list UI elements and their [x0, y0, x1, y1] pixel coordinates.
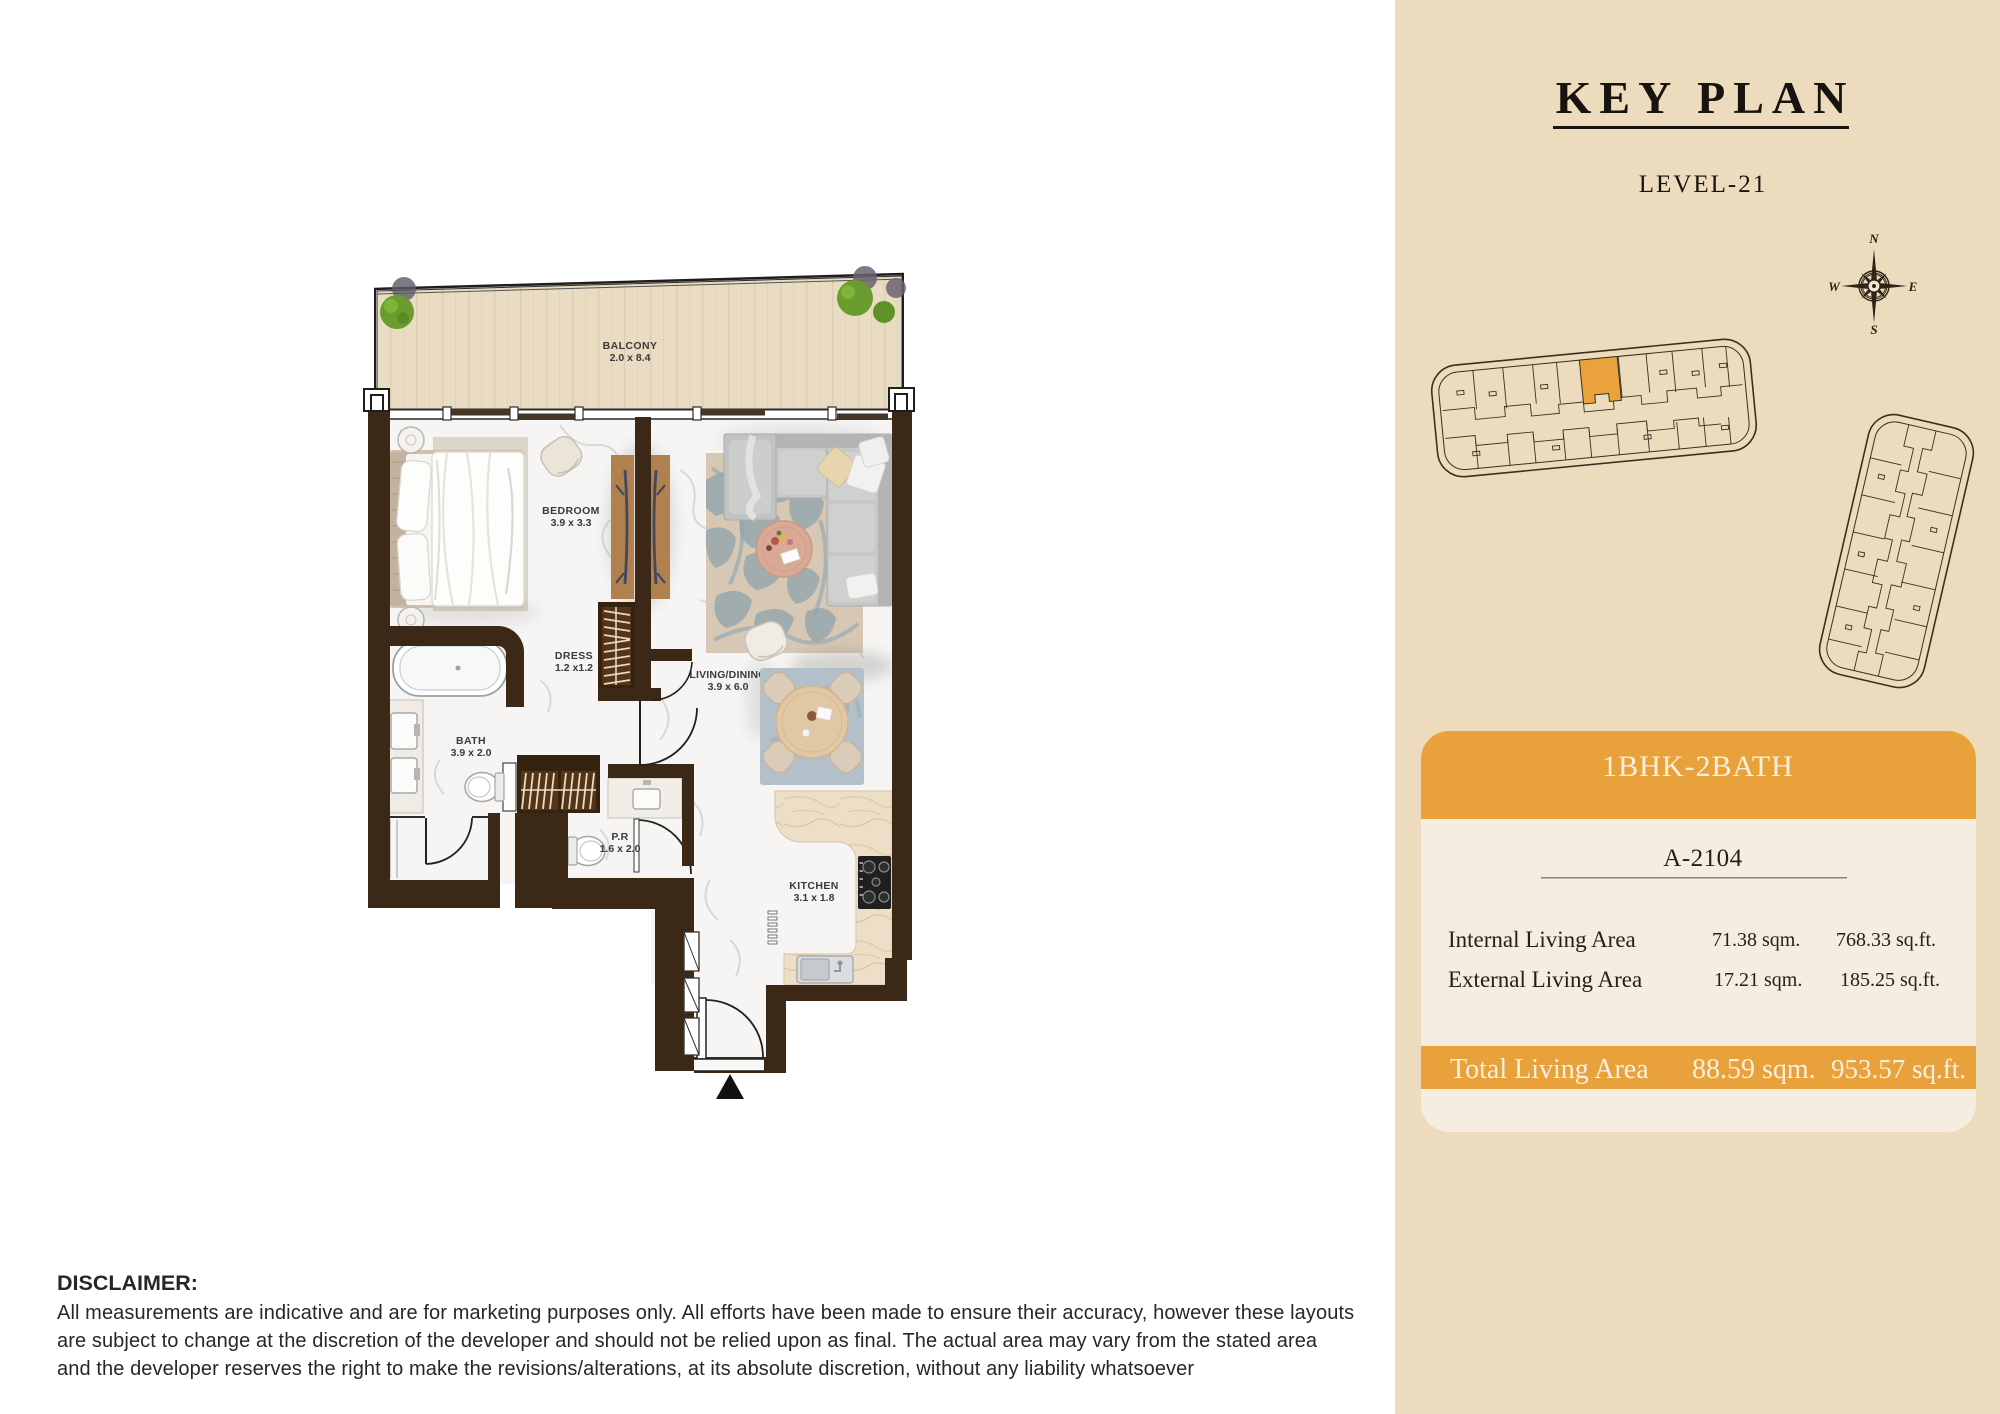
svg-text:E: E — [1908, 279, 1918, 294]
svg-text:P.R: P.R — [611, 831, 628, 843]
svg-text:768.33 sq.ft.: 768.33 sq.ft. — [1836, 929, 1936, 951]
svg-text:953.57 sq.ft.: 953.57 sq.ft. — [1831, 1054, 1966, 1084]
svg-text:are subject to change at the d: are subject to change at the discretion … — [57, 1330, 1318, 1352]
svg-text:All measurements are indicativ: All measurements are indicative and are … — [57, 1302, 1354, 1324]
svg-text:1.2 x1.2: 1.2 x1.2 — [555, 662, 593, 674]
svg-text:N: N — [1868, 231, 1879, 246]
svg-text:and the developer reserves the: and the developer reserves the right to … — [57, 1358, 1194, 1380]
svg-text:3.1 x 1.8: 3.1 x 1.8 — [794, 892, 835, 904]
svg-text:3.9 x 2.0: 3.9 x 2.0 — [451, 747, 492, 759]
svg-text:A-2104: A-2104 — [1663, 845, 1742, 872]
svg-text:1BHK-2BATH: 1BHK-2BATH — [1602, 750, 1794, 783]
svg-text:S: S — [1870, 322, 1877, 337]
svg-text:BALCONY: BALCONY — [603, 340, 658, 352]
svg-text:1.6 x 2.0: 1.6 x 2.0 — [600, 843, 641, 855]
svg-text:LEVEL-21: LEVEL-21 — [1639, 171, 1767, 198]
svg-text:3.9 x 6.0: 3.9 x 6.0 — [708, 681, 749, 693]
svg-text:DRESS: DRESS — [555, 650, 593, 662]
svg-text:KEY PLAN: KEY PLAN — [1556, 72, 1855, 123]
svg-text:External Living Area: External Living Area — [1448, 967, 1642, 992]
svg-text:185.25 sq.ft.: 185.25 sq.ft. — [1840, 969, 1940, 991]
svg-text:BEDROOM: BEDROOM — [542, 505, 600, 517]
svg-text:KITCHEN: KITCHEN — [789, 880, 838, 892]
svg-text:88.59 sqm.: 88.59 sqm. — [1692, 1054, 1816, 1085]
svg-text:71.38 sqm.: 71.38 sqm. — [1712, 929, 1800, 951]
svg-text:17.21 sqm.: 17.21 sqm. — [1714, 969, 1802, 991]
svg-text:2.0 x 8.4: 2.0 x 8.4 — [610, 352, 651, 364]
svg-text:Internal Living Area: Internal Living Area — [1448, 927, 1636, 952]
svg-text:BATH: BATH — [456, 735, 486, 747]
svg-text:Total Living Area: Total Living Area — [1450, 1054, 1649, 1085]
svg-text:W: W — [1828, 279, 1841, 294]
svg-text:3.9 x 3.3: 3.9 x 3.3 — [551, 517, 592, 529]
svg-text:DISCLAIMER:: DISCLAIMER: — [57, 1271, 198, 1295]
